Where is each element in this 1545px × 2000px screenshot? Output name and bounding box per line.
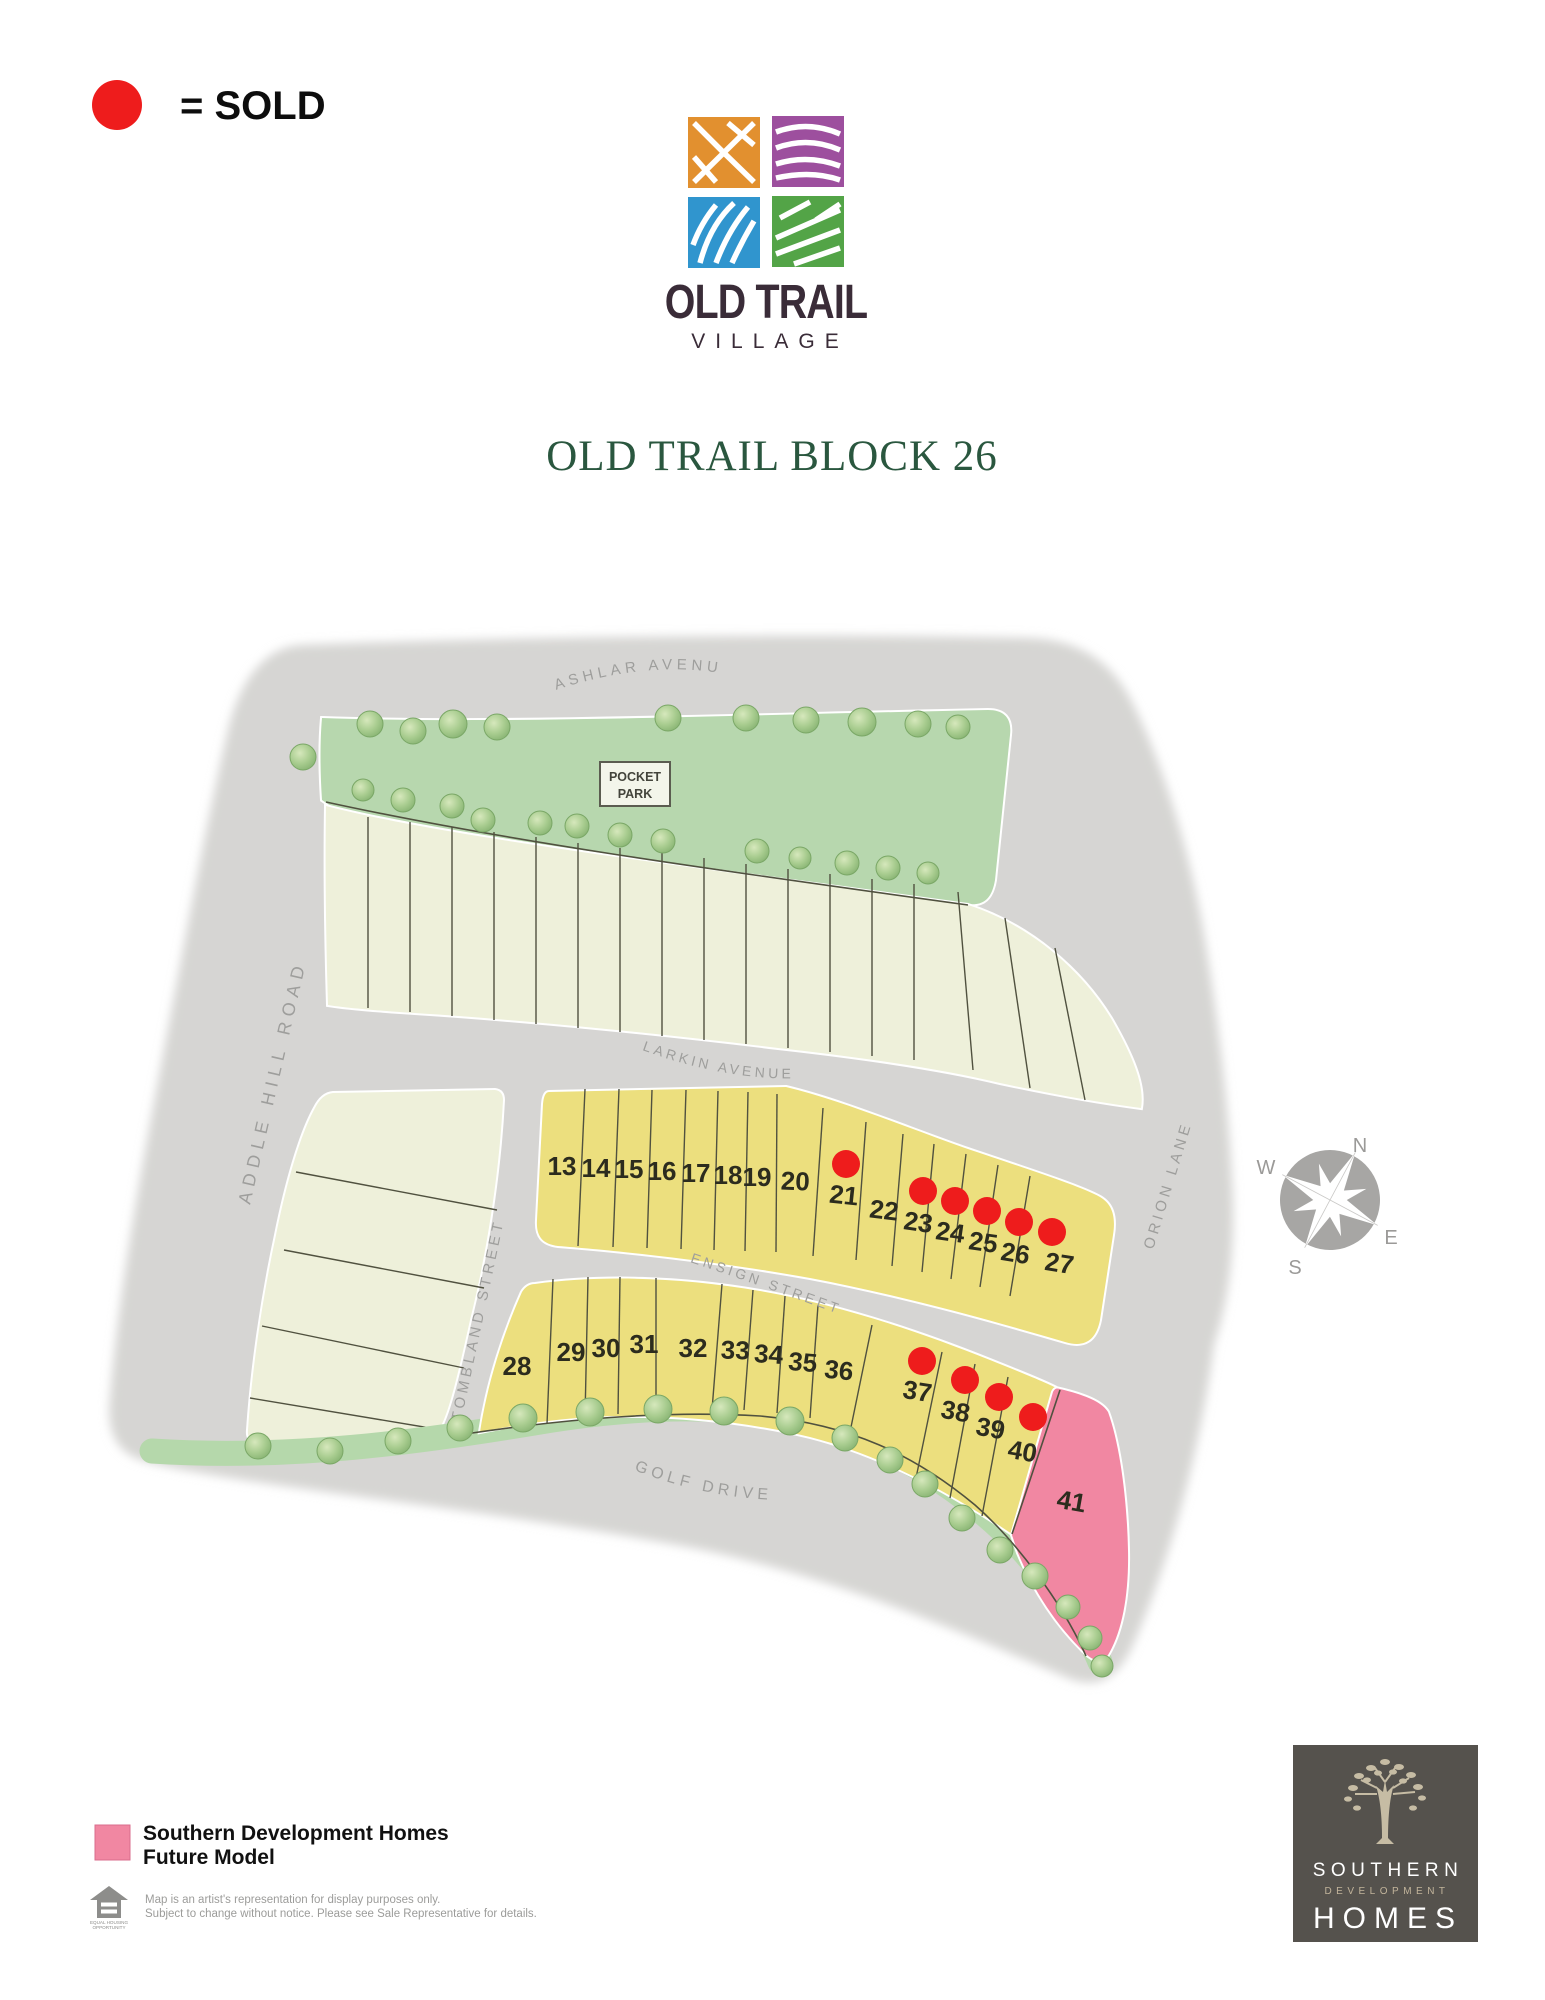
lot-number-25: 25 xyxy=(967,1225,1000,1259)
tree-icon xyxy=(733,705,759,731)
tree-icon xyxy=(509,1404,537,1432)
page-title: OLD TRAIL BLOCK 26 xyxy=(546,433,998,480)
tree-icon xyxy=(608,823,632,847)
sold-legend-label: = SOLD xyxy=(180,84,326,128)
equal-housing-text-2: OPPORTUNITY xyxy=(92,1925,125,1930)
tree-icon xyxy=(848,708,876,736)
lot-number-39: 39 xyxy=(974,1411,1008,1446)
lot-number-19: 19 xyxy=(743,1162,772,1192)
tree-icon xyxy=(352,779,374,801)
tree-icon xyxy=(317,1438,343,1464)
tree-icon xyxy=(710,1397,738,1425)
compass-n: N xyxy=(1353,1135,1367,1157)
lot-number-30: 30 xyxy=(592,1333,621,1363)
lot-number-23: 23 xyxy=(902,1205,935,1239)
lot-number-24: 24 xyxy=(934,1215,967,1249)
lot-number-15: 15 xyxy=(615,1154,644,1184)
lot-number-38: 38 xyxy=(939,1394,973,1429)
tree-icon xyxy=(1091,1655,1113,1677)
tree-icon xyxy=(440,794,464,818)
tree-icon xyxy=(655,705,681,731)
lot-number-33: 33 xyxy=(720,1335,750,1366)
tree-icon xyxy=(357,711,383,737)
lot-number-18: 18 xyxy=(714,1160,743,1190)
site-plan-flyer: = SOLD OLD TRAIL VILLAGE OLD TRAIL BLOCK… xyxy=(0,0,1545,2000)
disclaimer-line-1: Map is an artist's representation for di… xyxy=(145,1894,440,1906)
disclaimer: EQUAL HOUSING OPPORTUNITY Map is an arti… xyxy=(90,1886,537,1930)
tree-icon xyxy=(949,1505,975,1531)
sold-dot-lot-38 xyxy=(951,1366,979,1394)
sold-dot-icon xyxy=(92,80,142,130)
sold-dot-lot-40 xyxy=(1019,1403,1047,1431)
lot-number-14: 14 xyxy=(582,1153,611,1183)
tree-icon xyxy=(290,744,316,770)
tree-icon xyxy=(789,847,811,869)
tree-icon xyxy=(651,829,675,853)
compass-s: S xyxy=(1288,1257,1301,1279)
builder-logo: SOUTHERN DEVELOPMENT HOMES xyxy=(1293,1745,1478,1942)
tree-icon xyxy=(1022,1563,1048,1589)
lot-number-26: 26 xyxy=(999,1236,1032,1270)
pocket-park-label-1: POCKET xyxy=(609,770,661,784)
sold-dot-lot-39 xyxy=(985,1383,1013,1411)
lot-number-21: 21 xyxy=(828,1179,860,1212)
tree-icon xyxy=(877,1447,903,1473)
lot-number-41: 41 xyxy=(1055,1484,1089,1519)
tree-icon xyxy=(987,1537,1013,1563)
pocket-park-sign: POCKET PARK xyxy=(600,762,670,806)
lot-number-22: 22 xyxy=(868,1193,900,1226)
tree-icon xyxy=(576,1398,604,1426)
tree-icon xyxy=(835,851,859,875)
tree-icon xyxy=(793,707,819,733)
tree-icon xyxy=(565,814,589,838)
sold-dot-lot-21 xyxy=(832,1150,860,1178)
sold-dot-lot-23 xyxy=(909,1177,937,1205)
sold-dot-lot-26 xyxy=(1005,1208,1033,1236)
tree-icon xyxy=(400,718,426,744)
tree-icon xyxy=(447,1415,473,1441)
lot-number-37: 37 xyxy=(901,1374,934,1408)
tree-icon xyxy=(245,1433,271,1459)
lot-number-13: 13 xyxy=(548,1151,577,1181)
tree-icon xyxy=(644,1395,672,1423)
tree-icon xyxy=(1056,1595,1080,1619)
builder-logo-line-1: SOUTHERN xyxy=(1313,1860,1464,1881)
logo-wordmark: OLD TRAIL xyxy=(665,275,868,329)
sold-dot-lot-27 xyxy=(1038,1218,1066,1246)
lot-number-32: 32 xyxy=(679,1333,708,1363)
logo-square-purple-icon xyxy=(772,116,844,187)
sold-dot-lot-24 xyxy=(941,1187,969,1215)
lot-number-31: 31 xyxy=(630,1329,659,1359)
tree-icon xyxy=(876,856,900,880)
tree-icon xyxy=(385,1428,411,1454)
lot-number-20: 20 xyxy=(780,1166,810,1197)
future-model-label-1: Southern Development Homes xyxy=(143,1822,449,1845)
builder-logo-line-2: DEVELOPMENT xyxy=(1324,1886,1449,1897)
logo-square-blue-icon xyxy=(688,197,760,268)
sold-legend: = SOLD xyxy=(92,80,326,130)
disclaimer-line-2: Subject to change without notice. Please… xyxy=(145,1908,537,1920)
lot-number-28: 28 xyxy=(503,1351,532,1381)
lot-number-27: 27 xyxy=(1043,1246,1076,1280)
pocket-park-label-2: PARK xyxy=(618,787,653,801)
tree-icon xyxy=(946,715,970,739)
equal-housing-icon: EQUAL HOUSING OPPORTUNITY xyxy=(90,1886,129,1930)
future-model-label-2: Future Model xyxy=(143,1846,275,1869)
logo-square-orange-icon xyxy=(688,117,760,188)
future-model-legend: Southern Development Homes Future Model xyxy=(95,1822,449,1869)
tree-icon xyxy=(832,1425,858,1451)
tree-icon xyxy=(912,1471,938,1497)
compass-e: E xyxy=(1384,1227,1397,1249)
lot-number-17: 17 xyxy=(682,1158,711,1188)
lot-number-29: 29 xyxy=(557,1337,586,1367)
tree-icon xyxy=(745,839,769,863)
logo-square-green-icon xyxy=(772,196,844,267)
tree-icon xyxy=(776,1407,804,1435)
tree-icon xyxy=(917,862,939,884)
tree-icon xyxy=(905,711,931,737)
old-trail-village-logo: OLD TRAIL VILLAGE xyxy=(665,116,868,353)
sold-dot-lot-37 xyxy=(908,1347,936,1375)
future-model-swatch xyxy=(95,1825,130,1860)
tree-icon xyxy=(471,808,495,832)
lot-number-40: 40 xyxy=(1006,1434,1040,1469)
tree-icon xyxy=(391,788,415,812)
logo-subtext: VILLAGE xyxy=(691,330,849,353)
sold-dot-lot-25 xyxy=(973,1197,1001,1225)
compass-rose: N E S W xyxy=(1257,1127,1403,1279)
compass-w: W xyxy=(1257,1157,1276,1179)
lot-number-35: 35 xyxy=(787,1346,818,1378)
lot-number-34: 34 xyxy=(753,1338,784,1370)
tree-icon xyxy=(1078,1626,1102,1650)
lot-number-36: 36 xyxy=(823,1354,855,1387)
tree-icon xyxy=(484,714,510,740)
tree-icon xyxy=(528,811,552,835)
lot-number-16: 16 xyxy=(648,1156,677,1186)
builder-logo-line-3: HOMES xyxy=(1313,1902,1463,1935)
tree-icon xyxy=(439,710,467,738)
